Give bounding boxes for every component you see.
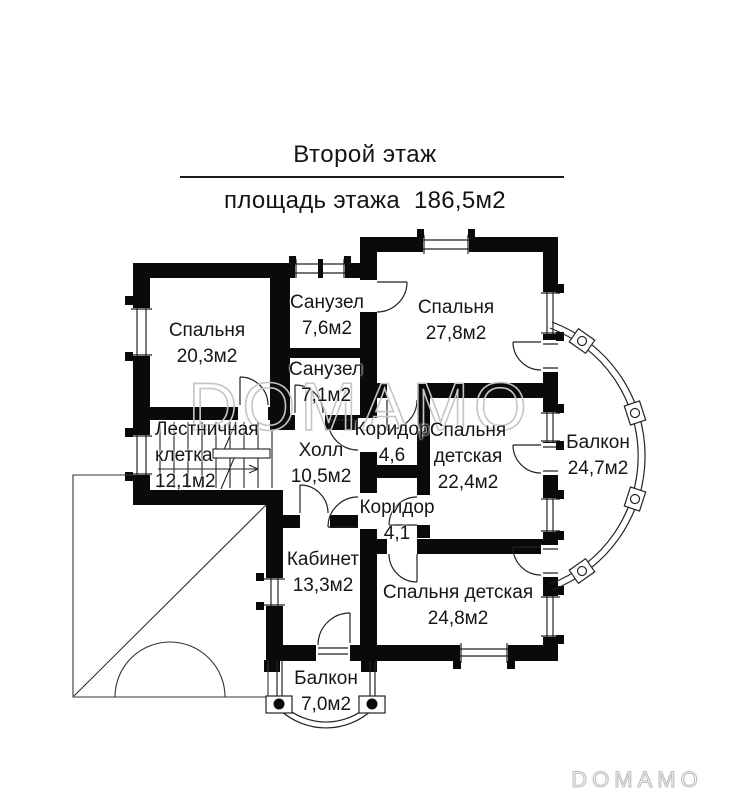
room-area: 7,0м2: [294, 692, 358, 718]
room-name: Коридор: [359, 495, 434, 521]
logo-text: DOMAMO: [571, 767, 702, 792]
room-name: Холл: [291, 438, 352, 464]
room-label-bath-71: Санузел 7,1м2: [289, 357, 363, 409]
room-name: Санузел: [290, 290, 364, 316]
room-label-bedroom-27: Спальня 27,8м2: [418, 295, 494, 347]
roof-outline: [73, 475, 268, 697]
floor-plan-drawing: DOMAMO DOMAMO: [0, 0, 730, 800]
room-area: 12,1м2: [155, 469, 277, 495]
room-name: Балкон: [566, 430, 630, 456]
room-area: 7,6м2: [290, 316, 364, 342]
room-name: Спальня детская: [417, 418, 519, 470]
room-area: 20,3м2: [169, 344, 245, 370]
room-area: 24,8м2: [383, 606, 533, 632]
room-name: Кабинет: [287, 547, 359, 573]
room-area: 7,1м2: [289, 383, 363, 409]
floor-plan-page: Второй этаж площадь этажа 186,5м2: [0, 0, 730, 800]
room-label-bath-76: Санузел 7,6м2: [290, 290, 364, 342]
room-area: 27,8м2: [418, 321, 494, 347]
room-area: 10,5м2: [291, 464, 352, 490]
room-name: Спальня: [169, 318, 245, 344]
room-label-cabinet: Кабинет 13,3м2: [287, 547, 359, 599]
room-label-corridor-41: Коридор 4,1: [359, 495, 434, 547]
room-area: 22,4м2: [417, 470, 519, 496]
room-label-balcony-24: Балкон 24,7м2: [566, 430, 630, 482]
room-name: Санузел: [289, 357, 363, 383]
room-label-balcony-7: Балкон 7,0м2: [294, 666, 358, 718]
room-label-bedroom-20: Спальня 20,3м2: [169, 318, 245, 370]
room-label-staircase: Лестничная клетка 12,1м2: [155, 417, 277, 495]
room-name: Спальня детская: [383, 580, 533, 606]
room-area: 13,3м2: [287, 573, 359, 599]
room-area: 4,1: [359, 521, 434, 547]
room-name: Лестничная клетка: [155, 417, 277, 469]
room-name: Спальня: [418, 295, 494, 321]
room-name: Балкон: [294, 666, 358, 692]
room-label-kids-22: Спальня детская 22,4м2: [417, 418, 519, 496]
room-area: 24,7м2: [566, 456, 630, 482]
room-label-kids-24: Спальня детская 24,8м2: [383, 580, 533, 632]
room-label-hall: Холл 10,5м2: [291, 438, 352, 490]
